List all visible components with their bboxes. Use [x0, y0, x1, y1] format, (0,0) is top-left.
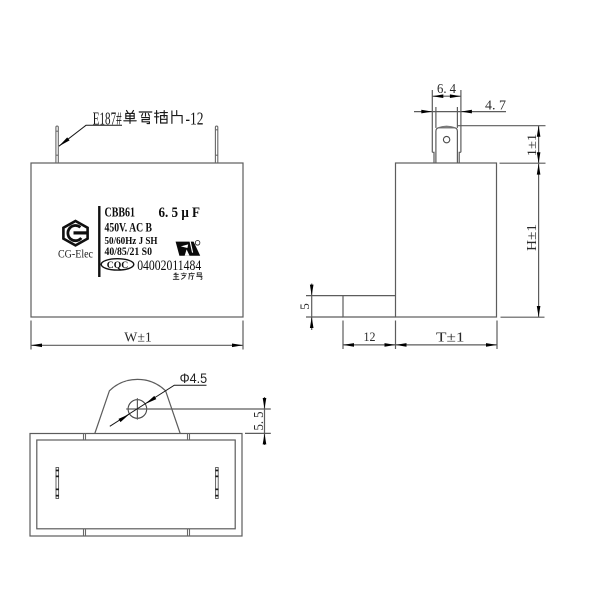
- svg-text:4. 7: 4. 7: [485, 97, 506, 112]
- svg-text:40/85/21 S0: 40/85/21 S0: [105, 244, 153, 258]
- svg-text:6. 4: 6. 4: [437, 81, 456, 96]
- svg-text:CQC: CQC: [107, 261, 129, 271]
- svg-text:CG-Elec: CG-Elec: [58, 247, 93, 261]
- svg-text:Φ4.5: Φ4.5: [180, 370, 208, 386]
- svg-text:1±1: 1±1: [524, 134, 539, 157]
- svg-text:-12: -12: [186, 108, 204, 128]
- svg-text:H±1: H±1: [525, 224, 540, 251]
- svg-text:CBB61: CBB61: [105, 206, 136, 221]
- svg-text:6. 5 μ F: 6. 5 μ F: [159, 205, 201, 221]
- svg-text:T±1: T±1: [436, 330, 465, 345]
- svg-text:04002011484: 04002011484: [137, 258, 201, 274]
- svg-text:W±1: W±1: [124, 330, 152, 345]
- svg-text:5: 5: [297, 303, 312, 310]
- svg-text:E187#: E187#: [93, 108, 122, 128]
- svg-text:12: 12: [364, 329, 376, 344]
- svg-text:5. 5: 5. 5: [251, 411, 266, 430]
- svg-text:450V. AC B: 450V. AC B: [105, 220, 153, 234]
